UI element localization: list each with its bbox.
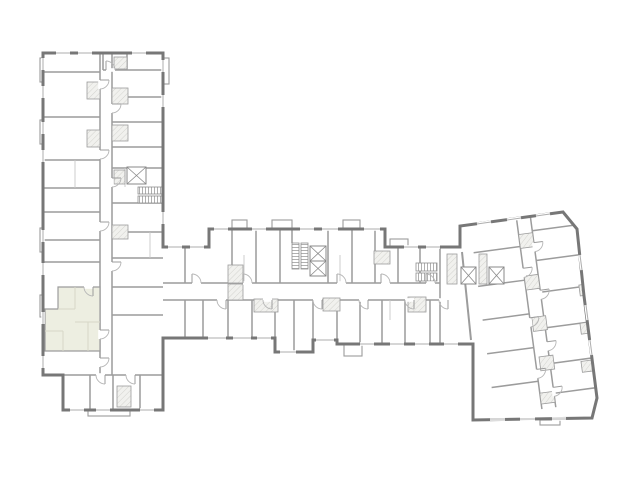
right-wing-walls xyxy=(470,208,624,416)
door-arc xyxy=(381,274,390,283)
wet-room xyxy=(112,125,128,141)
door-arc xyxy=(100,80,109,89)
door-arc xyxy=(100,150,109,159)
wet-room xyxy=(228,284,243,300)
wet-room xyxy=(112,225,128,239)
door-arc xyxy=(112,104,121,113)
door-arc xyxy=(96,375,105,384)
door-arc xyxy=(112,262,121,271)
door-arc xyxy=(534,241,544,251)
stair-run xyxy=(292,243,299,269)
loggia xyxy=(585,220,598,232)
stair-core xyxy=(138,187,163,203)
wet-room xyxy=(228,265,243,283)
door-arc xyxy=(553,386,563,396)
wet-room xyxy=(447,254,457,284)
stair-core xyxy=(292,243,308,269)
door-arc xyxy=(337,274,346,283)
door-arc xyxy=(547,341,557,351)
wet-room xyxy=(117,386,131,407)
wet-room xyxy=(479,254,487,284)
wet-room xyxy=(532,316,548,332)
wing-seam-wall xyxy=(462,252,471,340)
door-arc xyxy=(192,274,201,283)
wet-room xyxy=(519,233,535,249)
elevator-shaft xyxy=(489,267,504,284)
stair-run xyxy=(416,263,437,271)
balcony xyxy=(344,344,362,356)
stair-run xyxy=(138,187,163,194)
stair-run xyxy=(301,243,308,269)
door-arc xyxy=(313,300,322,309)
loggia xyxy=(579,283,593,296)
wet-room xyxy=(112,88,128,104)
door-arc xyxy=(100,222,109,231)
balconies xyxy=(40,58,560,425)
unit-entrance-door xyxy=(100,330,109,339)
left-wing-walls xyxy=(43,53,163,410)
wet-room xyxy=(114,57,127,69)
door-arc xyxy=(126,375,135,384)
floor-plan xyxy=(0,0,640,480)
stair-run xyxy=(138,196,163,203)
elevator-shaft xyxy=(127,167,146,184)
door-arcs xyxy=(84,61,448,384)
wet-room xyxy=(114,170,125,184)
door-arc xyxy=(100,358,109,367)
elevator-shaft xyxy=(310,246,326,261)
wet-room xyxy=(323,298,340,311)
door-arc xyxy=(217,300,226,309)
balcony xyxy=(540,420,560,425)
highlighted-unit-outline[interactable] xyxy=(45,287,100,351)
door-arc xyxy=(540,289,550,299)
elevator-shaft xyxy=(461,267,476,284)
left-wing xyxy=(43,53,163,410)
junction-core xyxy=(416,252,504,340)
wet-room xyxy=(374,251,390,264)
elevator-shaft xyxy=(310,261,326,276)
wet-room xyxy=(87,130,100,147)
wet-room xyxy=(87,82,100,99)
highlighted-unit[interactable] xyxy=(45,287,100,351)
right-wing xyxy=(470,208,624,416)
